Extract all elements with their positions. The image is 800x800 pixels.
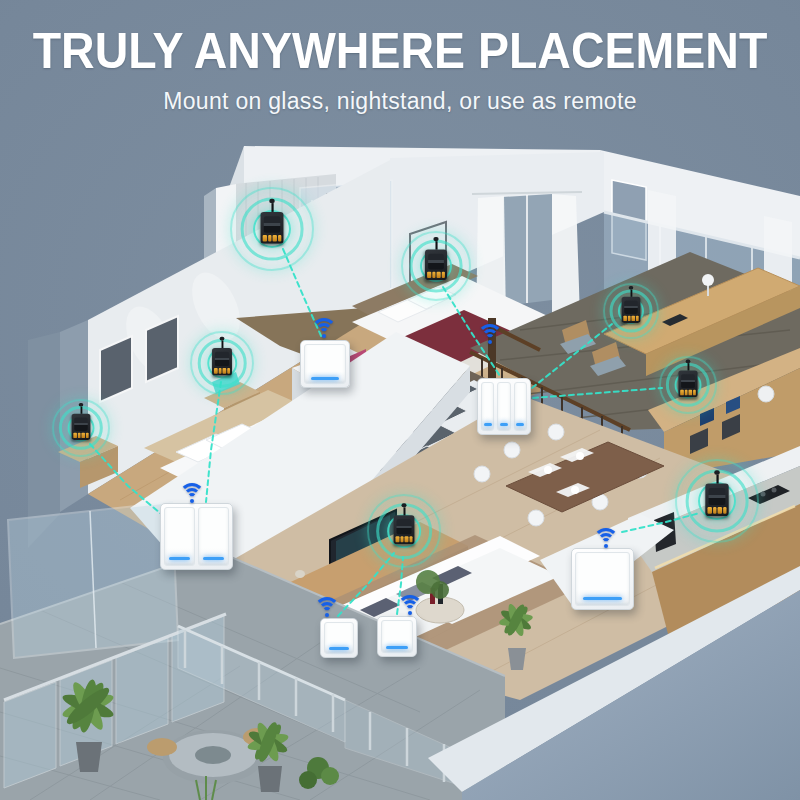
relay-terminals (263, 235, 282, 242)
relay-front-panel (74, 417, 88, 431)
house-scene (0, 0, 800, 800)
switch-rocker (324, 622, 354, 654)
relay-front-panel (215, 352, 229, 366)
relay-antenna (630, 290, 632, 297)
wifi-icon-living-2 (397, 595, 423, 615)
wall-switch-bedroom1-2gang (160, 503, 233, 570)
wifi-dot (322, 334, 326, 338)
relay-antenna (716, 475, 718, 484)
relay-front-panel (428, 254, 444, 270)
relay-body (705, 484, 729, 516)
relay-antenna (80, 407, 82, 414)
wifi-icon-bedroom2 (311, 318, 337, 338)
relay-antenna (687, 363, 689, 370)
relay-body (72, 414, 91, 440)
switch-rocker (575, 552, 630, 606)
wifi-icon-stairs (477, 324, 503, 344)
relay-body (260, 212, 283, 244)
switch-rocker (304, 344, 346, 384)
relay-front-panel (709, 488, 726, 505)
header: TRULY ANYWHERE PLACEMENT Mount on glass,… (0, 0, 800, 115)
relay-body (212, 348, 232, 376)
switch-indicator (311, 377, 340, 380)
subheadline: Mount on glass, nightstand, or use as re… (0, 88, 800, 115)
wifi-icon-living-1 (314, 597, 340, 617)
devices-layer (0, 0, 800, 800)
switch-indicator (484, 423, 492, 426)
relay-antenna (221, 340, 223, 348)
wifi-dot (408, 611, 412, 615)
relay-terminals (623, 316, 638, 321)
relay-antenna (271, 203, 273, 212)
relay-terminals (707, 507, 726, 514)
relay-body (678, 371, 697, 398)
relay-body (622, 297, 641, 323)
switch-rocker (164, 507, 195, 566)
wall-switch-dining-1gang (571, 548, 634, 610)
relay-antenna (435, 241, 437, 249)
switch-indicator (386, 646, 408, 649)
switch-indicator (169, 557, 190, 560)
relay-terminals (396, 536, 413, 542)
relay-front-panel (397, 519, 412, 534)
relay-front-panel (681, 374, 695, 388)
wall-switch-living-remote-2 (377, 616, 417, 657)
relay-front-panel (264, 216, 281, 233)
relay-terminals (427, 272, 445, 278)
relay-terminals (680, 390, 696, 396)
wifi-dot (325, 613, 329, 617)
switch-indicator (500, 423, 508, 426)
switch-rocker (381, 620, 413, 653)
switch-rocker (514, 382, 527, 431)
wifi-dot (604, 544, 608, 548)
wall-switch-living-remote-1 (320, 618, 358, 658)
switch-indicator (583, 597, 621, 600)
wifi-icon-bedroom1 (179, 483, 205, 503)
relay-body (425, 250, 447, 280)
wifi-dot (190, 499, 194, 503)
wifi-icon-dining (593, 528, 619, 548)
switch-rocker (497, 382, 510, 431)
switch-rocker (481, 382, 494, 431)
switch-indicator (203, 557, 224, 560)
relay-body (394, 515, 415, 544)
wifi-dot (488, 340, 492, 344)
wall-switch-bedroom2-remote (300, 340, 350, 388)
relay-antenna (403, 507, 405, 515)
relay-terminals (73, 433, 88, 438)
switch-rocker (198, 507, 229, 566)
poster: TRULY ANYWHERE PLACEMENT Mount on glass,… (0, 0, 800, 800)
switch-indicator (516, 423, 524, 426)
headline: TRULY ANYWHERE PLACEMENT (28, 22, 772, 80)
switch-indicator (329, 647, 349, 650)
relay-front-panel (624, 300, 638, 314)
wall-switch-stairs-3gang (477, 378, 531, 435)
relay-terminals (214, 368, 230, 374)
